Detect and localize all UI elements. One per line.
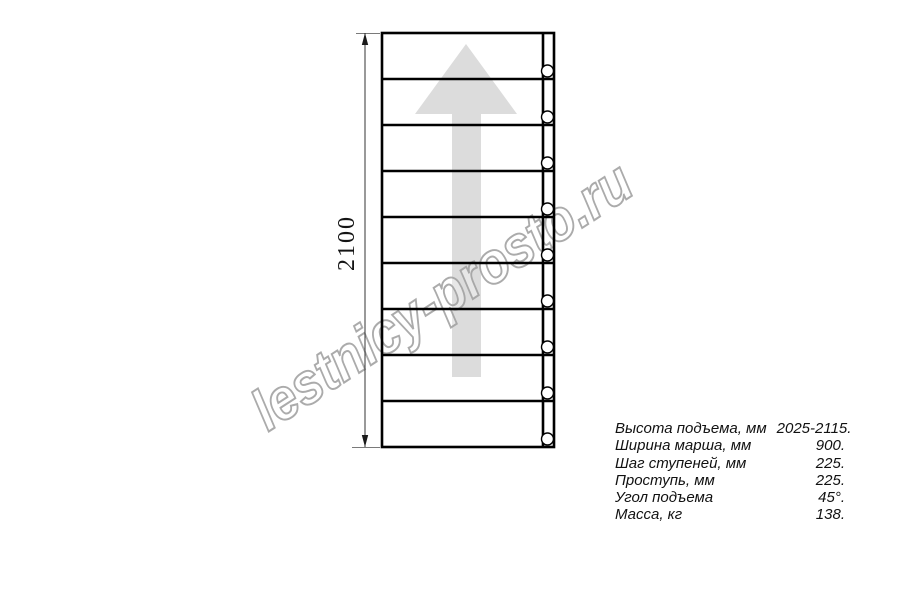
spec-row-step: Шаг ступеней, мм 225. (615, 455, 845, 472)
bolt-hole-circle (542, 203, 554, 215)
spec-row-tread: Проступь, мм 225. (615, 472, 845, 489)
bolt-hole-circle (542, 295, 554, 307)
bolt-hole-circle (542, 387, 554, 399)
bolt-hole-circle (542, 157, 554, 169)
spec-value: 225. (816, 455, 845, 472)
bolt-hole-circle (542, 341, 554, 353)
dimension-arrow-down-icon (362, 435, 368, 447)
bolt-hole-circle (542, 433, 554, 445)
watermark-text: lestnicy-prosto.ru (240, 149, 644, 443)
spec-row-angle: Угол подъема 45°. (615, 489, 845, 506)
spec-row-width: Ширина марша, мм 900. (615, 437, 845, 454)
dimension-label: 2100 (334, 215, 360, 271)
bolt-hole-circle (542, 111, 554, 123)
spec-label: Высота подъема, мм (615, 420, 767, 437)
bolt-hole-circle (542, 65, 554, 77)
dimension-arrow-up-icon (362, 33, 368, 45)
bolt-holes (542, 65, 554, 445)
spec-label: Шаг ступеней, мм (615, 455, 746, 472)
spec-value: 225. (816, 472, 845, 489)
spec-value: 45°. (818, 489, 845, 506)
spec-value: 900. (816, 437, 845, 454)
spec-row-height: Высота подъема, мм 2025-2115. (615, 420, 845, 437)
spec-label: Угол подъема (615, 489, 713, 506)
spec-value: 2025-2115. (777, 420, 852, 437)
spec-value: 138. (816, 506, 845, 523)
spec-label: Масса, кг (615, 506, 682, 523)
spec-label: Ширина марша, мм (615, 437, 751, 454)
spec-label: Проступь, мм (615, 472, 715, 489)
spec-table: Высота подъема, мм 2025-2115. Ширина мар… (615, 420, 845, 524)
bolt-hole-circle (542, 249, 554, 261)
spec-row-mass: Масса, кг 138. (615, 506, 845, 523)
drawing-canvas: lestnicy-prosto.ru 2100 Высота подъема, … (0, 0, 900, 600)
